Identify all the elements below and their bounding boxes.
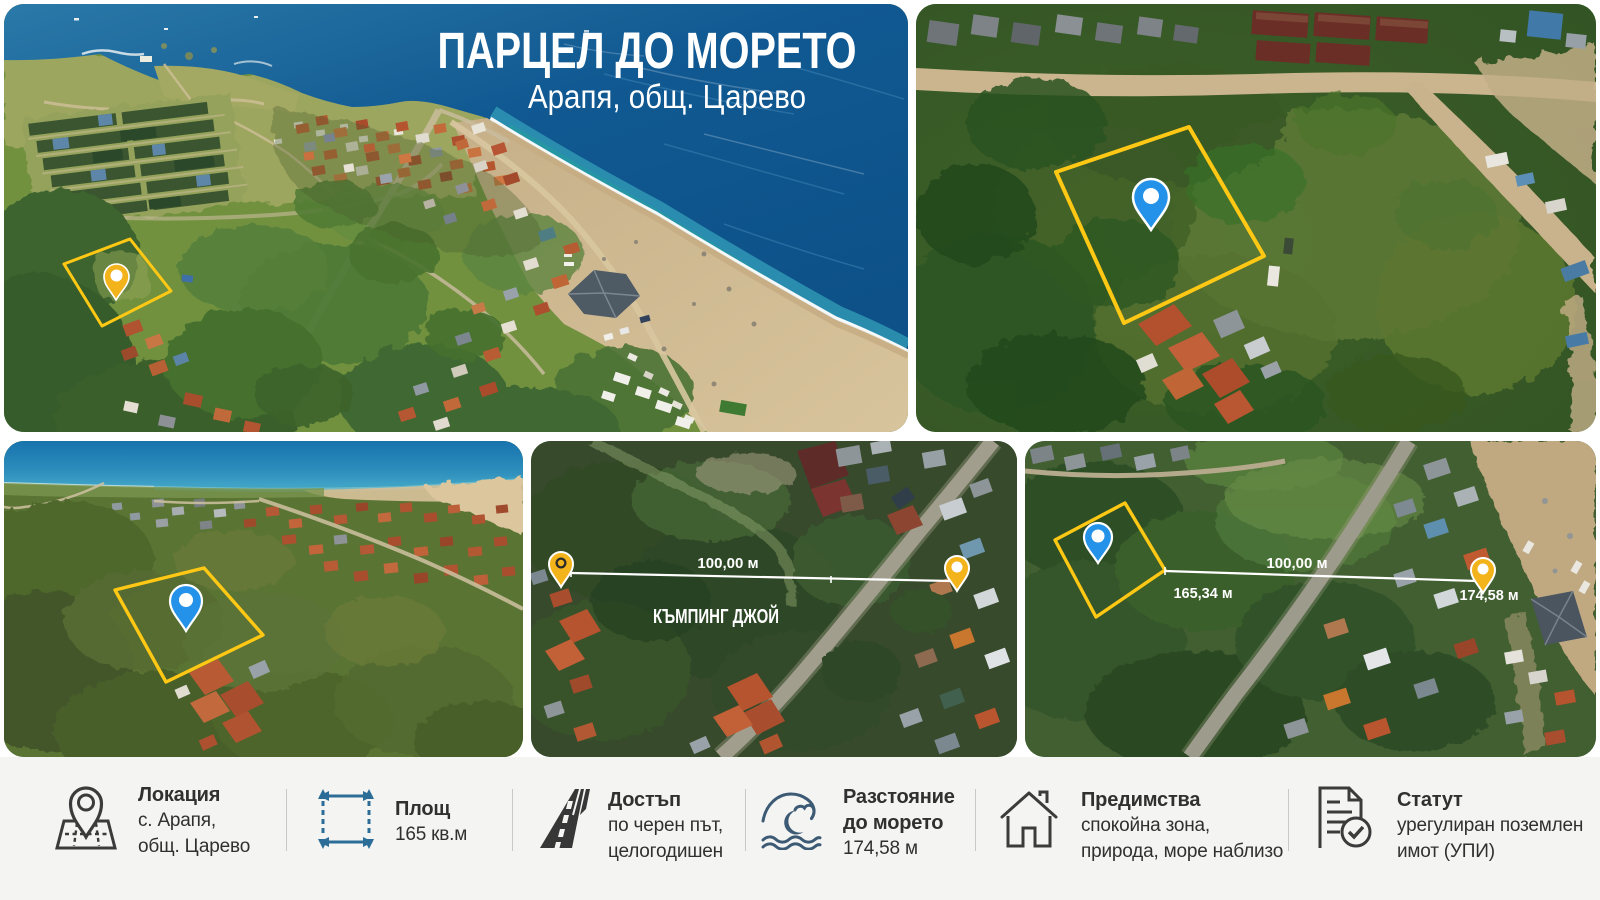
svg-text:ПАРЦЕЛ ДО МОРЕТО: ПАРЦЕЛ ДО МОРЕТО — [438, 22, 857, 79]
svg-text:Арапя, общ. Царево: Арапя, общ. Царево — [528, 78, 806, 115]
svg-text:165,34 м: 165,34 м — [1173, 586, 1232, 602]
svg-text:174,58 м: 174,58 м — [1459, 588, 1518, 604]
svg-text:100,00 м: 100,00 м — [1266, 555, 1327, 572]
svg-text:КЪМПИНГ ДЖОЙ: КЪМПИНГ ДЖОЙ — [653, 604, 779, 628]
svg-text:100,00 м: 100,00 м — [697, 555, 758, 572]
